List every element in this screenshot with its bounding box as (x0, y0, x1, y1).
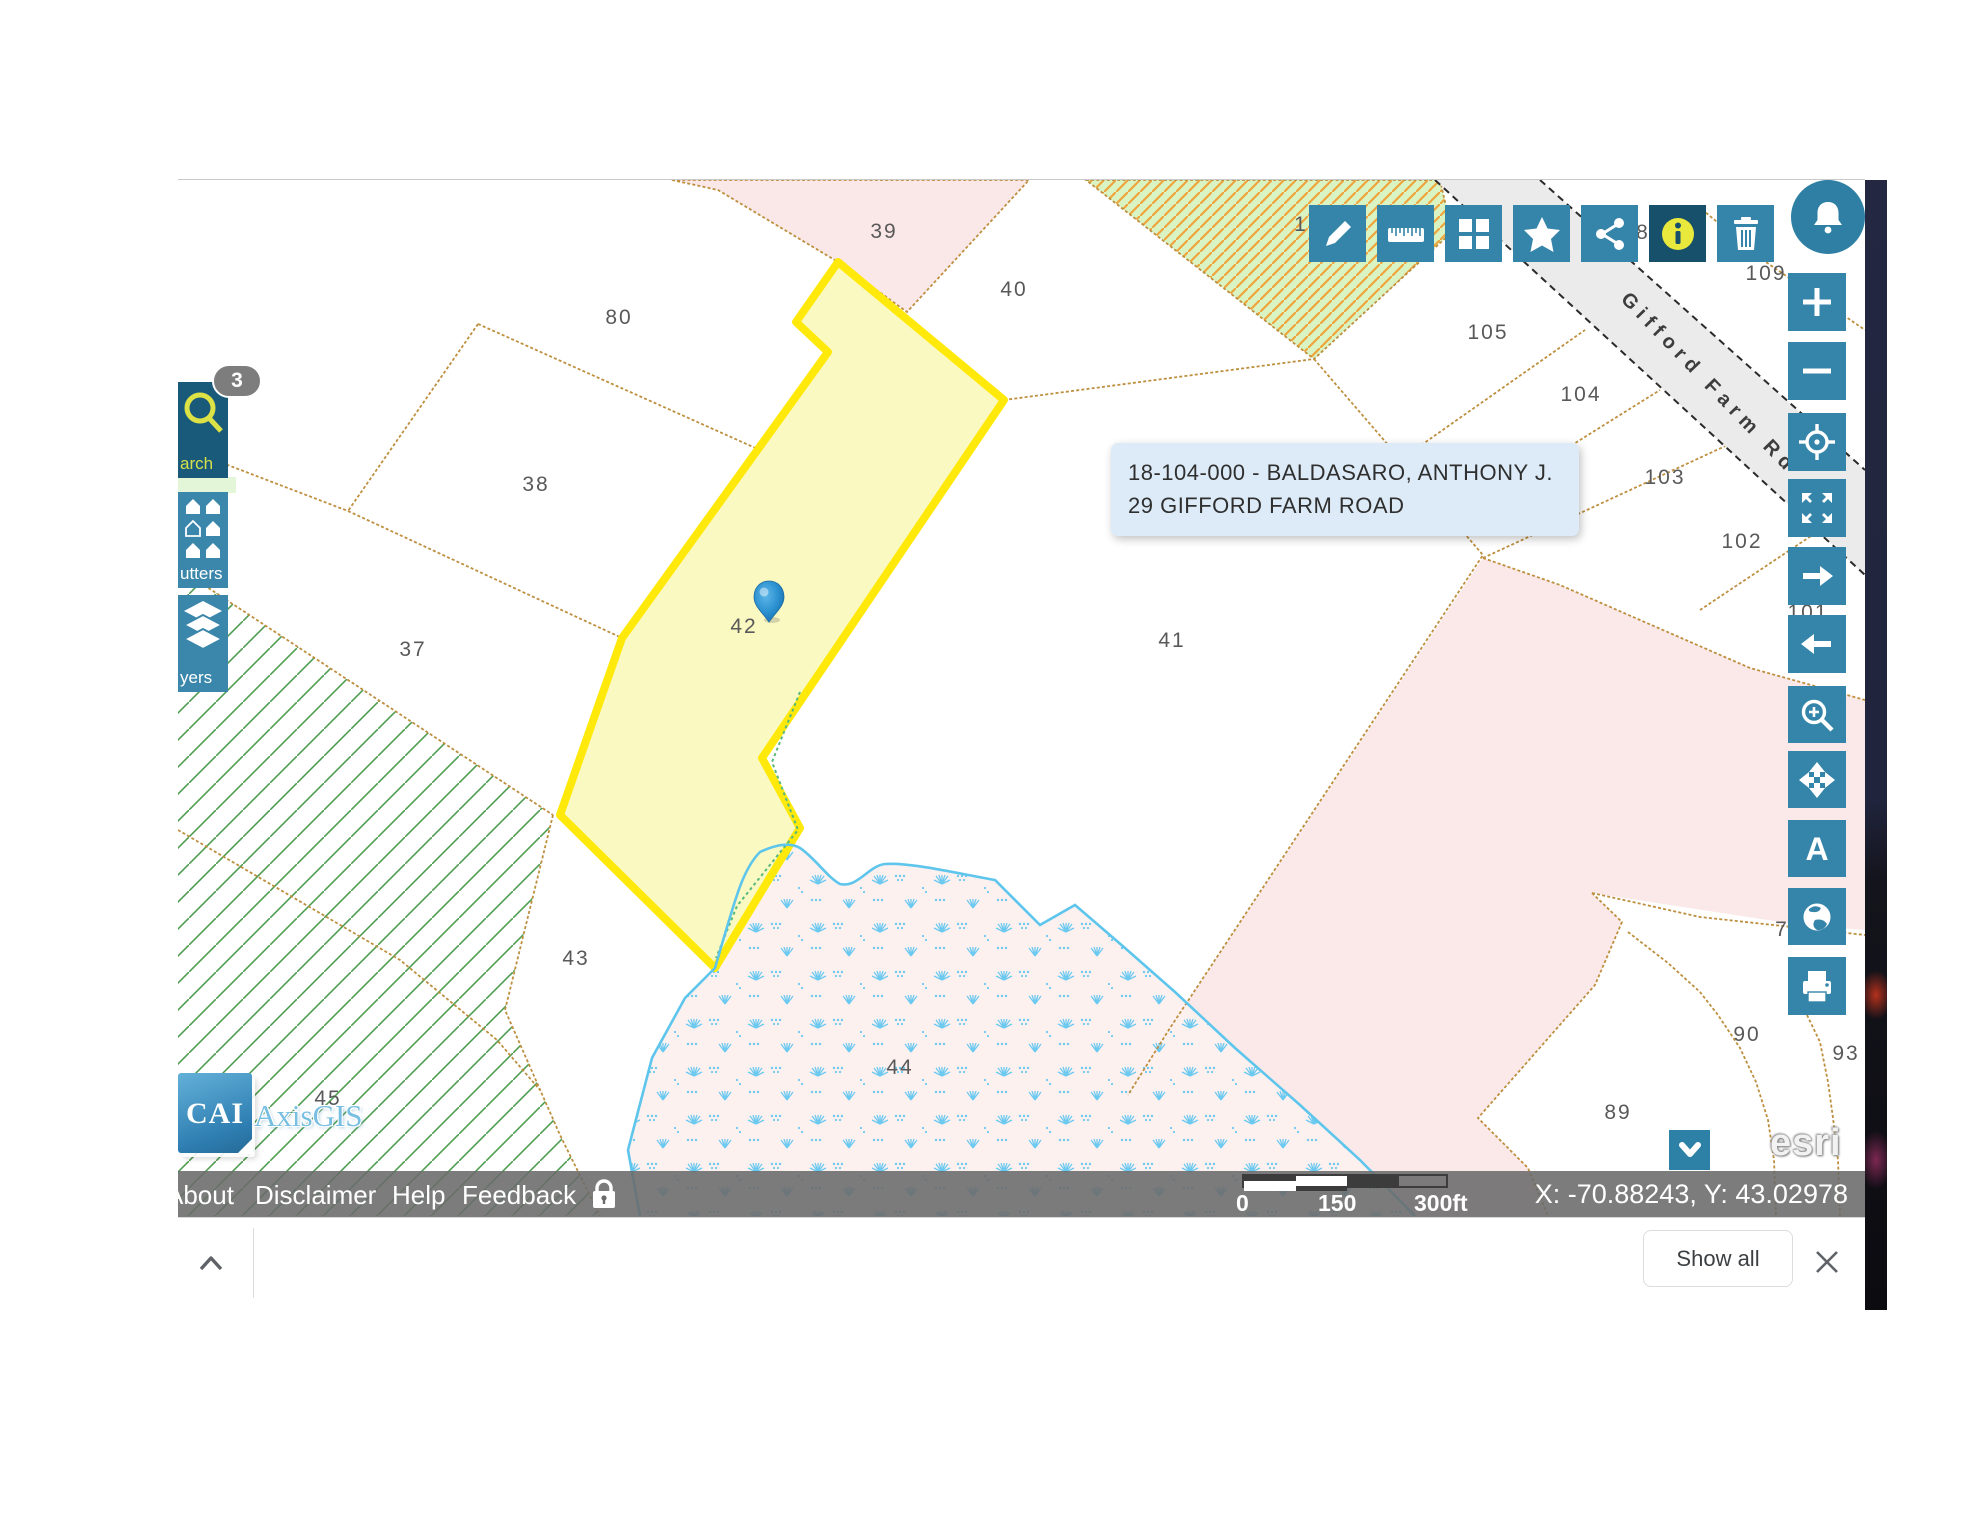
abutters-houses-icon (178, 492, 228, 562)
scale-zero: 0 (1236, 1190, 1249, 1217)
esri-logo: esri (1770, 1122, 1842, 1165)
overview-button[interactable] (1788, 888, 1846, 945)
svg-text:93: 93 (1832, 1042, 1859, 1065)
svg-text:A: A (1805, 831, 1828, 867)
disclaimer-link[interactable]: Disclaimer (255, 1180, 376, 1211)
road-label: Gifford Farm Rd (1616, 288, 1801, 478)
parcel-tooltip: 18-104-000 - BALDASARO, ANTHONY J. 29 GI… (1111, 443, 1579, 536)
road-a-icon: A (1795, 827, 1839, 871)
tooltip-line2: 29 GIFFORD FARM ROAD (1128, 489, 1579, 522)
svg-text:89: 89 (1604, 1101, 1631, 1124)
background-image-strip (1865, 180, 1887, 1310)
full-extent-button[interactable] (1788, 479, 1846, 537)
svg-text:103: 103 (1644, 466, 1685, 489)
info-icon (1656, 212, 1700, 256)
print-button[interactable] (1788, 957, 1846, 1015)
clear-selection-button[interactable] (1717, 205, 1774, 262)
map-viewport[interactable]: Gifford Farm Rd 39 40 80 38 37 42 41 43 … (178, 180, 1865, 1216)
svg-text:104: 104 (1560, 383, 1601, 406)
chevron-down-icon (1675, 1137, 1705, 1163)
strip-glow (1865, 1130, 1887, 1190)
default-extent-button[interactable] (1788, 413, 1846, 471)
bell-icon (1805, 194, 1851, 240)
svg-text:38: 38 (522, 473, 549, 496)
map-top-border (178, 179, 1865, 180)
tooltip-line1: 18-104-000 - BALDASARO, ANTHONY J. (1128, 456, 1579, 489)
chevron-up-icon (196, 1252, 226, 1276)
svg-text:39: 39 (870, 220, 897, 243)
cai-logo-text: CAI (186, 1097, 244, 1131)
globe-icon (1795, 895, 1839, 939)
about-link[interactable]: About (166, 1180, 234, 1211)
pan-button[interactable] (1788, 751, 1846, 808)
show-all-button[interactable]: Show all (1643, 1230, 1793, 1287)
svg-text:105: 105 (1467, 321, 1508, 344)
identify-button-active[interactable] (1649, 205, 1706, 262)
svg-text:109: 109 (1745, 262, 1786, 285)
svg-text:90: 90 (1733, 1023, 1760, 1046)
layers-icon (178, 595, 228, 665)
highlighted-parcel-42[interactable] (560, 262, 1004, 968)
downloads-divider (253, 1228, 254, 1298)
previous-extent-button[interactable] (1788, 615, 1846, 673)
fullscreen-icon (1796, 487, 1838, 529)
svg-text:43: 43 (562, 947, 589, 970)
sidebar-item-label: utters (178, 564, 228, 584)
share-button[interactable] (1581, 205, 1638, 262)
scale-bar (1242, 1174, 1448, 1188)
move-icon (1795, 758, 1839, 802)
share-icon (1588, 212, 1632, 256)
zoom-out-button[interactable] (1788, 342, 1846, 400)
grid-icon (1452, 212, 1496, 256)
sidebar-item-search[interactable]: arch (178, 382, 228, 478)
sidebar-item-label: arch (178, 454, 228, 474)
axisgis-logo-text: AxisGIS (254, 1098, 363, 1134)
collapse-attribution-button[interactable] (1669, 1130, 1710, 1170)
svg-text:7: 7 (1775, 918, 1789, 941)
sidebar-item-abutters[interactable]: utters (178, 492, 228, 588)
basemap-button[interactable] (1445, 205, 1502, 262)
svg-text:44: 44 (886, 1056, 913, 1079)
scale-max: 300ft (1414, 1190, 1468, 1217)
svg-text:41: 41 (1158, 629, 1185, 652)
downloads-close-button[interactable] (1812, 1247, 1842, 1282)
magnifier-plus-icon (1796, 694, 1838, 736)
trash-icon (1724, 212, 1768, 256)
lock-icon[interactable] (590, 1178, 618, 1210)
svg-text:102: 102 (1721, 530, 1762, 553)
status-bar: About Disclaimer Help Feedback 0 150 300… (178, 1171, 1865, 1217)
measure-button[interactable] (1377, 205, 1434, 262)
next-extent-button[interactable] (1788, 547, 1846, 605)
streets-button[interactable]: A (1788, 820, 1846, 877)
notifications-button[interactable] (1791, 180, 1865, 254)
green-sliver (178, 477, 236, 493)
map-canvas[interactable]: Gifford Farm Rd 39 40 80 38 37 42 41 43 … (178, 180, 1865, 1216)
svg-text:40: 40 (1000, 278, 1027, 301)
sidebar-item-layers[interactable]: yers (178, 595, 228, 692)
scale-mid: 150 (1318, 1190, 1356, 1217)
svg-text:8: 8 (1636, 221, 1650, 244)
sidebar-item-label: yers (178, 668, 228, 688)
arrow-right-icon (1796, 555, 1838, 597)
zoom-window-button[interactable] (1788, 686, 1846, 743)
draw-button[interactable] (1309, 205, 1366, 262)
cai-logo[interactable]: CAI (178, 1073, 252, 1153)
results-count-badge: 3 (212, 364, 262, 398)
svg-text:42: 42 (730, 615, 757, 638)
pencil-icon (1316, 212, 1360, 256)
star-icon (1519, 212, 1565, 256)
logo-fold-corner (237, 1138, 253, 1154)
bookmarks-button[interactable] (1513, 205, 1570, 262)
strip-glow (1865, 970, 1887, 1020)
feedback-link[interactable]: Feedback (462, 1180, 576, 1211)
help-link[interactable]: Help (392, 1180, 445, 1211)
close-icon (1812, 1247, 1842, 1277)
cursor-coordinates: X: -70.88243, Y: 43.02978 (1535, 1179, 1848, 1210)
plus-icon (1797, 282, 1837, 322)
target-icon (1796, 421, 1838, 463)
downloads-expand-button[interactable] (196, 1252, 226, 1281)
zoom-in-button[interactable] (1788, 273, 1846, 331)
arrow-left-icon (1796, 623, 1838, 665)
svg-text:80: 80 (605, 306, 632, 329)
ruler-icon (1383, 212, 1429, 256)
svg-text:1: 1 (1294, 213, 1308, 236)
printer-icon (1795, 964, 1839, 1008)
map-bottom-border (178, 1217, 1865, 1218)
minus-icon (1797, 351, 1837, 391)
svg-text:37: 37 (399, 638, 426, 661)
